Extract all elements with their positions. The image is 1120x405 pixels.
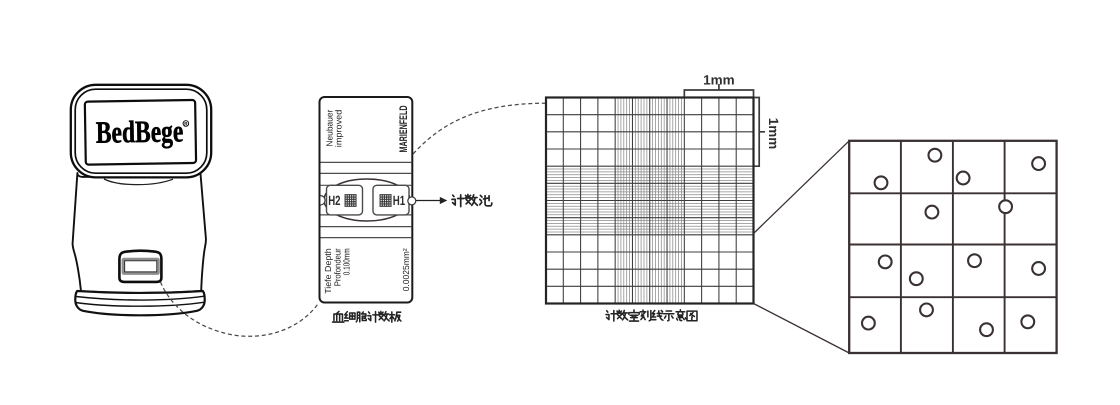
svg-text:1mm: 1mm [766,118,781,150]
svg-text:H1: H1 [393,193,406,208]
svg-text:BedBege: BedBege [96,113,184,149]
svg-text:MARIENFELD: MARIENFELD [398,105,410,152]
svg-text:0.0025mm²: 0.0025mm² [401,248,411,291]
svg-text:1mm: 1mm [703,73,735,88]
svg-text:H2: H2 [328,193,340,208]
svg-text:improved: improved [333,110,343,148]
svg-text:0.100mm: 0.100mm [342,248,352,275]
